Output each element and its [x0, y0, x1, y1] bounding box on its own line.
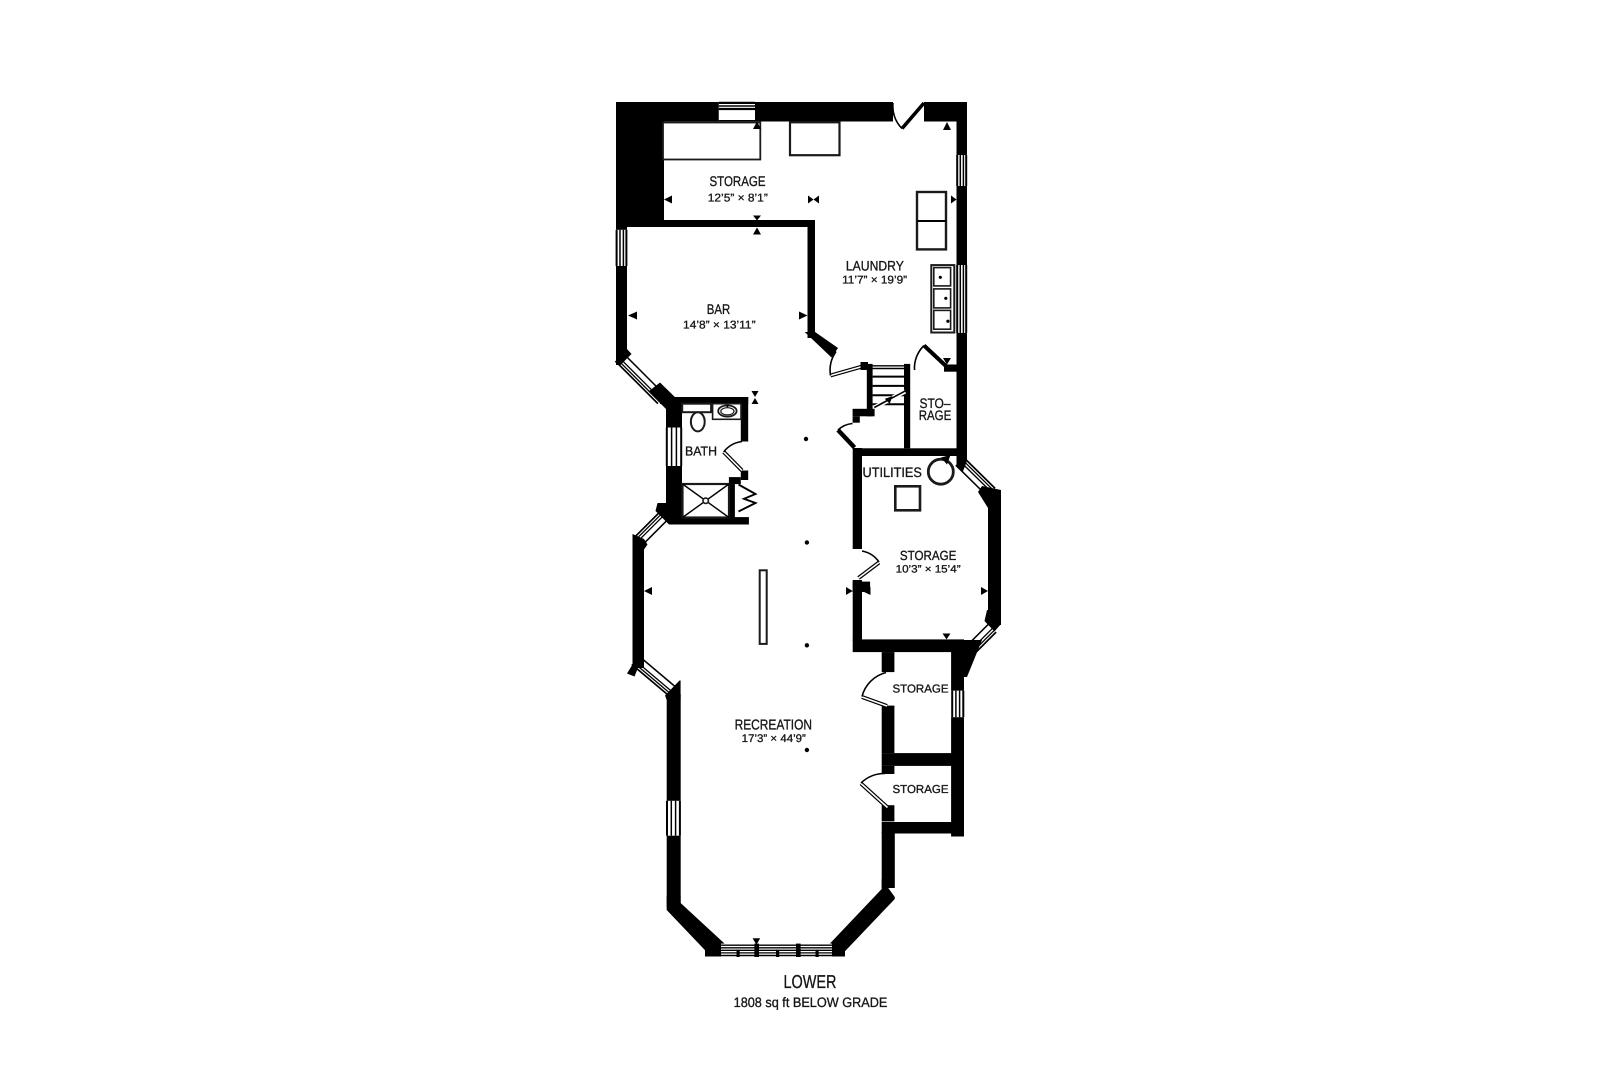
svg-text:14’8” × 13’11”: 14’8” × 13’11” [683, 319, 756, 331]
svg-text:STORAGE: STORAGE [710, 173, 766, 189]
svg-text:STORAGE: STORAGE [900, 548, 957, 563]
svg-text:RECREATION: RECREATION [735, 718, 812, 734]
svg-text:10’3” × 15’4”: 10’3” × 15’4” [896, 564, 961, 576]
svg-text:17’3” × 44’9”: 17’3” × 44’9” [742, 733, 807, 745]
svg-text:BAR: BAR [707, 301, 731, 317]
svg-text:1808 sq ft BELOW GRADE: 1808 sq ft BELOW GRADE [734, 995, 888, 1010]
svg-text:11’7” × 19’9”: 11’7” × 19’9” [842, 274, 907, 286]
svg-text:STORAGE: STORAGE [893, 784, 949, 796]
svg-text:STORAGE: STORAGE [893, 684, 949, 696]
svg-text:RAGE: RAGE [919, 408, 951, 423]
svg-text:12’5” × 8’1”: 12’5” × 8’1” [708, 192, 768, 204]
svg-text:LOWER: LOWER [784, 971, 837, 992]
svg-text:BATH: BATH [685, 444, 717, 459]
svg-text:LAUNDRY: LAUNDRY [846, 259, 904, 274]
svg-text:UTILITIES: UTILITIES [863, 465, 922, 480]
